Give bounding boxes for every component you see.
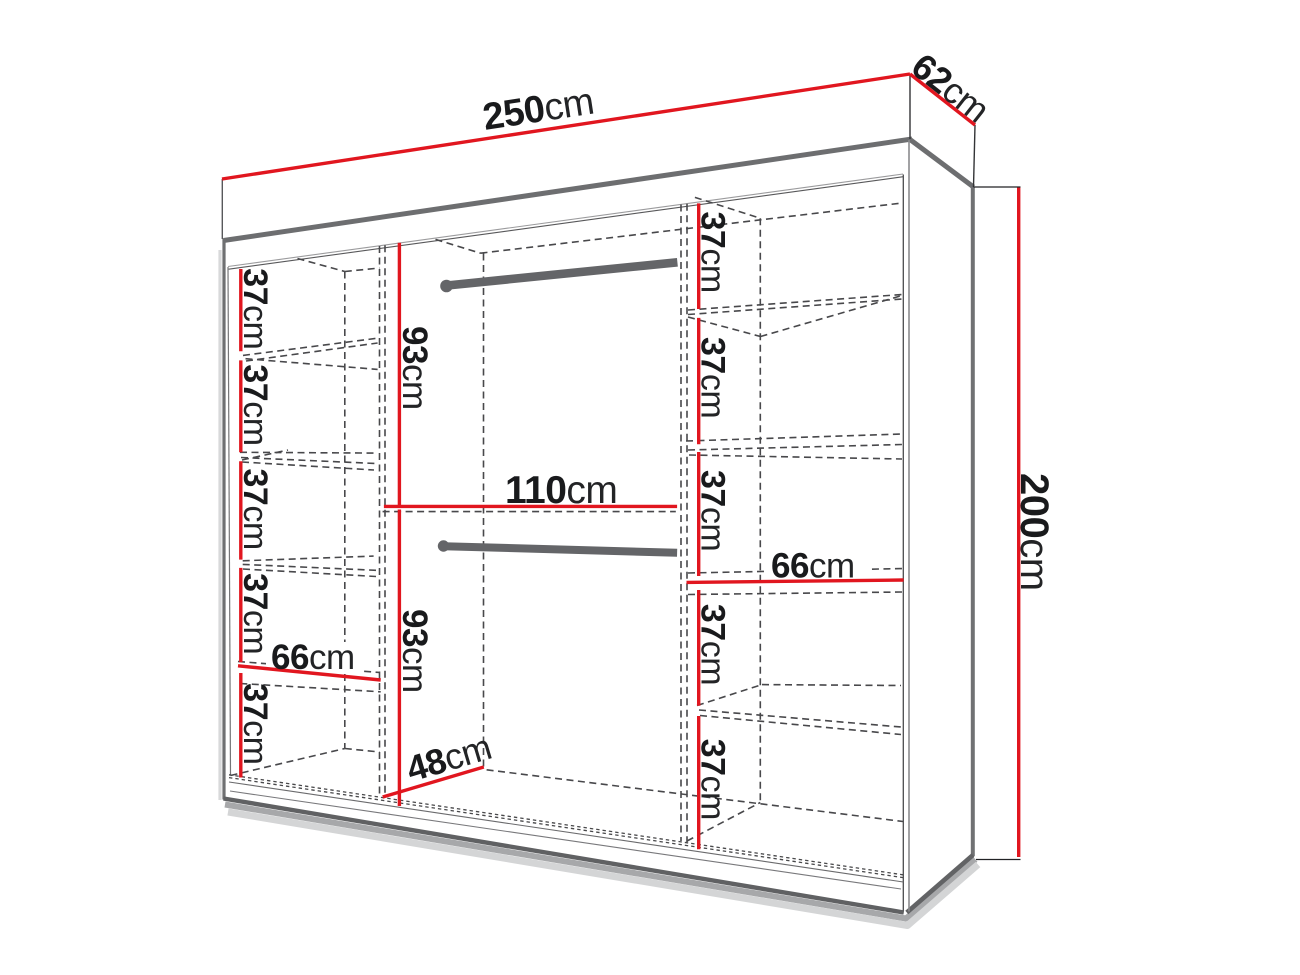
svg-text:110cm: 110cm (505, 469, 617, 512)
svg-text:93cm: 93cm (395, 609, 434, 693)
svg-text:37cm: 37cm (694, 604, 732, 685)
svg-text:37cm: 37cm (694, 739, 732, 820)
svg-text:62cm: 62cm (904, 45, 997, 130)
svg-text:37cm: 37cm (236, 573, 274, 654)
svg-text:37cm: 37cm (236, 469, 274, 550)
svg-text:200cm: 200cm (1012, 473, 1056, 591)
svg-text:37cm: 37cm (694, 470, 732, 551)
svg-text:93cm: 93cm (395, 326, 434, 410)
svg-text:37cm: 37cm (694, 212, 732, 293)
svg-text:66cm: 66cm (771, 547, 855, 586)
svg-text:37cm: 37cm (694, 337, 732, 418)
svg-text:37cm: 37cm (236, 268, 274, 349)
svg-text:37cm: 37cm (236, 364, 274, 445)
svg-text:66cm: 66cm (271, 638, 355, 677)
svg-text:37cm: 37cm (236, 683, 274, 764)
